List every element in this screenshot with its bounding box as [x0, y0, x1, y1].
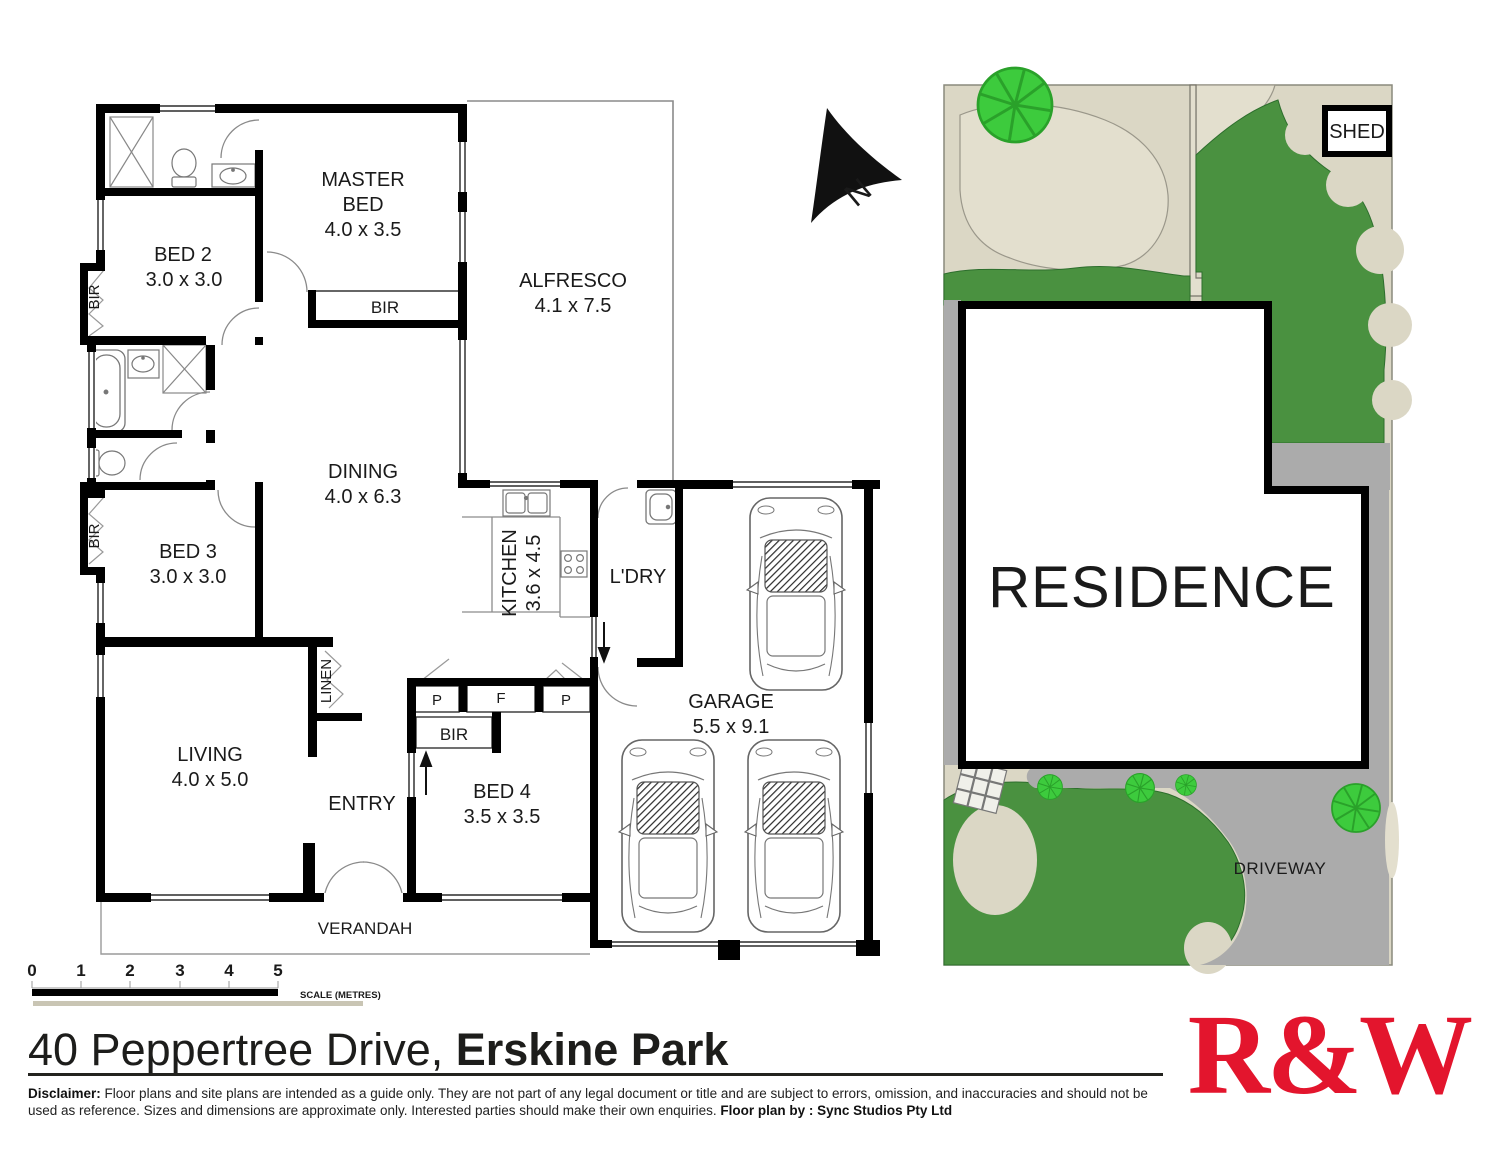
laundry-tub-icon	[646, 490, 676, 524]
room-dims-alfresco: 4.1 x 7.5	[535, 295, 612, 317]
room-dims-dining: 4.0 x 6.3	[325, 486, 402, 508]
scale-tick-5: 5	[273, 961, 282, 980]
disclaimer-text: Disclaimer: Floor plans and site plans a…	[28, 1086, 1168, 1120]
room-label-bed3: BED 3	[159, 541, 217, 563]
room-dims-living: 4.0 x 5.0	[172, 769, 249, 791]
shed-label: SHED	[1329, 121, 1385, 143]
room-label-entry: ENTRY	[328, 793, 395, 815]
entry-arrow-icon	[421, 753, 431, 795]
bath-shower-icon	[163, 345, 206, 393]
plan-canvas: MASTER BED 4.0 x 3.5 BED 2 3.0 x 3.0 ALF…	[0, 0, 1496, 1010]
tree-large	[978, 68, 1052, 142]
room-dims-master: 4.0 x 3.5	[325, 219, 402, 241]
room-label-bed4: BED 4	[473, 781, 531, 803]
room-dims-kitchen: 3.6 x 4.5	[523, 535, 545, 612]
room-label-kitchen: KITCHEN	[499, 529, 521, 617]
scale-tick-3: 3	[175, 961, 184, 980]
tree-small-3	[1176, 775, 1197, 796]
bir-label-master: BIR	[371, 298, 399, 317]
stove-icon	[561, 551, 587, 577]
room-label-verandah: VERANDAH	[318, 919, 412, 938]
pantry-label-2: P	[561, 692, 571, 709]
scale-tick-4: 4	[224, 961, 234, 980]
address-suburb: Erskine Park	[456, 1024, 729, 1075]
garage-car-1	[747, 498, 845, 690]
bir-label-bed2: BIR	[86, 284, 103, 309]
room-label-laundry: L'DRY	[610, 566, 667, 588]
garage-car-3	[745, 740, 843, 932]
tree-small-2	[1126, 774, 1155, 803]
room-label-living: LIVING	[177, 744, 243, 766]
driveway-label: DRIVEWAY	[1234, 859, 1327, 878]
room-label-master-1: MASTER	[321, 169, 404, 191]
room-dims-garage: 5.5 x 9.1	[693, 716, 770, 738]
room-label-bed2: BED 2	[154, 244, 212, 266]
room-label-dining: DINING	[328, 461, 398, 483]
tree-small-4	[1332, 784, 1380, 832]
bir-label-bed3: BIR	[86, 523, 103, 548]
scale-caption: SCALE (METRES)	[300, 990, 381, 1001]
scale-bar: 0 1 2 3 4 5 SCALE (METRES)	[27, 961, 380, 1006]
bath-vanity-icon	[128, 350, 159, 378]
site-plan: RESIDENCE SHED DRIVEWAY	[944, 68, 1412, 974]
side-door-arrow-icon	[599, 622, 609, 661]
room-label-master-2: BED	[342, 194, 383, 216]
agency-logo: R&W	[1188, 998, 1470, 1112]
scale-tick-0: 0	[27, 961, 36, 980]
disclaimer-body: Floor plans and site plans are intended …	[28, 1086, 1148, 1118]
garage-car-2	[619, 740, 717, 932]
residence-label: RESIDENCE	[988, 555, 1335, 620]
room-label-alfresco: ALFRESCO	[519, 270, 627, 292]
scale-tick-1: 1	[76, 961, 85, 980]
ensuite-shower-icon	[110, 117, 153, 187]
tree-small-1	[1038, 775, 1063, 800]
ensuite-toilet-icon	[172, 149, 196, 187]
room-dims-bed3: 3.0 x 3.0	[150, 566, 227, 588]
room-label-garage: GARAGE	[688, 691, 774, 713]
room-dims-bed2: 3.0 x 3.0	[146, 269, 223, 291]
disclaimer-prefix: Disclaimer:	[28, 1086, 101, 1101]
floorplan-credit: Floor plan by : Sync Studios Pty Ltd	[720, 1103, 952, 1118]
scale-tick-2: 2	[125, 961, 134, 980]
floor-plan: MASTER BED 4.0 x 3.5 BED 2 3.0 x 3.0 ALF…	[80, 101, 880, 960]
address-street: 40 Peppertree Drive,	[28, 1024, 456, 1075]
bir-label-bed4: BIR	[440, 725, 468, 744]
title-divider	[28, 1073, 1163, 1076]
fridge-label: F	[496, 690, 505, 707]
north-arrow: N	[811, 108, 902, 223]
kitchen-sink-icon	[503, 490, 550, 516]
pantry-label-1: P	[432, 692, 442, 709]
ensuite-vanity-icon	[212, 164, 255, 187]
page-title: 40 Peppertree Drive, Erskine Park	[28, 1024, 728, 1076]
room-dims-bed4: 3.5 x 3.5	[464, 806, 541, 828]
linen-label: LINEN	[318, 659, 335, 703]
floorplan-page: MASTER BED 4.0 x 3.5 BED 2 3.0 x 3.0 ALF…	[0, 0, 1496, 1150]
